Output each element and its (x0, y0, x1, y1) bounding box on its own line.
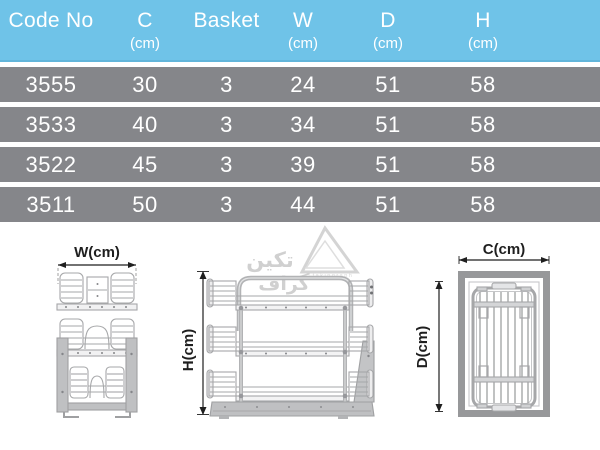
header-cell-d: D (cm) (341, 0, 435, 62)
table-cell-basket: 3 (188, 107, 265, 142)
table-cell-code: 3511 (0, 187, 102, 222)
table-cell-c: 45 (102, 147, 188, 182)
table-cell-w: 34 (265, 107, 341, 142)
header-cell-c: C (cm) (102, 0, 188, 62)
table-cell-d: 51 (341, 107, 435, 142)
front-view-diagram (57, 262, 137, 417)
table-cell-h: 58 (435, 67, 531, 102)
table-cell-h: 58 (435, 147, 531, 182)
table-cell-w: 44 (265, 187, 341, 222)
watermark-logo: تکین گراف takingraph (246, 228, 357, 295)
header-unit: (cm) (341, 34, 435, 53)
technical-drawings: تکین گراف takingraph (0, 222, 600, 450)
table-cell-code: 3522 (0, 147, 102, 182)
height-dimension-label: H(cm) (180, 329, 197, 372)
table-cell-h: 58 (435, 107, 531, 142)
table-cell-h: 58 (435, 187, 531, 222)
width-dimension-label: W(cm) (74, 244, 120, 261)
table-row: 3533 40 3 34 51 58 (0, 107, 600, 142)
header-cell-h: H (cm) (435, 0, 531, 62)
table-row: 3555 30 3 24 51 58 (0, 67, 600, 102)
table-cell-c: 30 (102, 67, 188, 102)
table-cell-code: 3533 (0, 107, 102, 142)
table-cell-c: 40 (102, 107, 188, 142)
header-cell-basket: Basket (188, 0, 265, 62)
header-unit: (cm) (102, 34, 188, 53)
table-cell-d: 51 (341, 187, 435, 222)
table-row: 3511 50 3 44 51 58 (0, 187, 600, 222)
table-row: 3522 45 3 39 51 58 (0, 147, 600, 182)
table-header-row: Code No C (cm) Basket W (cm) D (cm) H (c… (0, 0, 600, 62)
cabinet-depth-dimension-arrow (435, 281, 443, 412)
header-unit: (cm) (265, 34, 341, 53)
header-label: Code No (0, 8, 102, 34)
watermark-text-1: تکین (246, 248, 294, 272)
header-label: H (435, 8, 531, 34)
table-cell-basket: 3 (188, 67, 265, 102)
table-cell-d: 51 (341, 147, 435, 182)
table-cell-basket: 3 (188, 147, 265, 182)
watermark-text-2: گراف (258, 272, 310, 295)
table-cell-d: 51 (341, 67, 435, 102)
header-label: C (102, 8, 188, 34)
header-cell-w: W (cm) (265, 0, 341, 62)
header-label: Basket (188, 8, 265, 34)
header-unit: (cm) (435, 34, 531, 53)
table-cell-w: 24 (265, 67, 341, 102)
table-cell-w: 39 (265, 147, 341, 182)
spec-table: Code No C (cm) Basket W (cm) D (cm) H (c… (0, 0, 600, 227)
header-cell-code-no: Code No (0, 0, 102, 62)
table-cell-code: 3555 (0, 67, 102, 102)
cabinet-width-dimension-label: C(cm) (483, 241, 526, 258)
cabinet-depth-dimension-label: D(cm) (414, 326, 431, 369)
top-view-diagram (435, 256, 550, 417)
table-cell-basket: 3 (188, 187, 265, 222)
table-cell-c: 50 (102, 187, 188, 222)
header-label: D (341, 8, 435, 34)
header-label: W (265, 8, 341, 34)
